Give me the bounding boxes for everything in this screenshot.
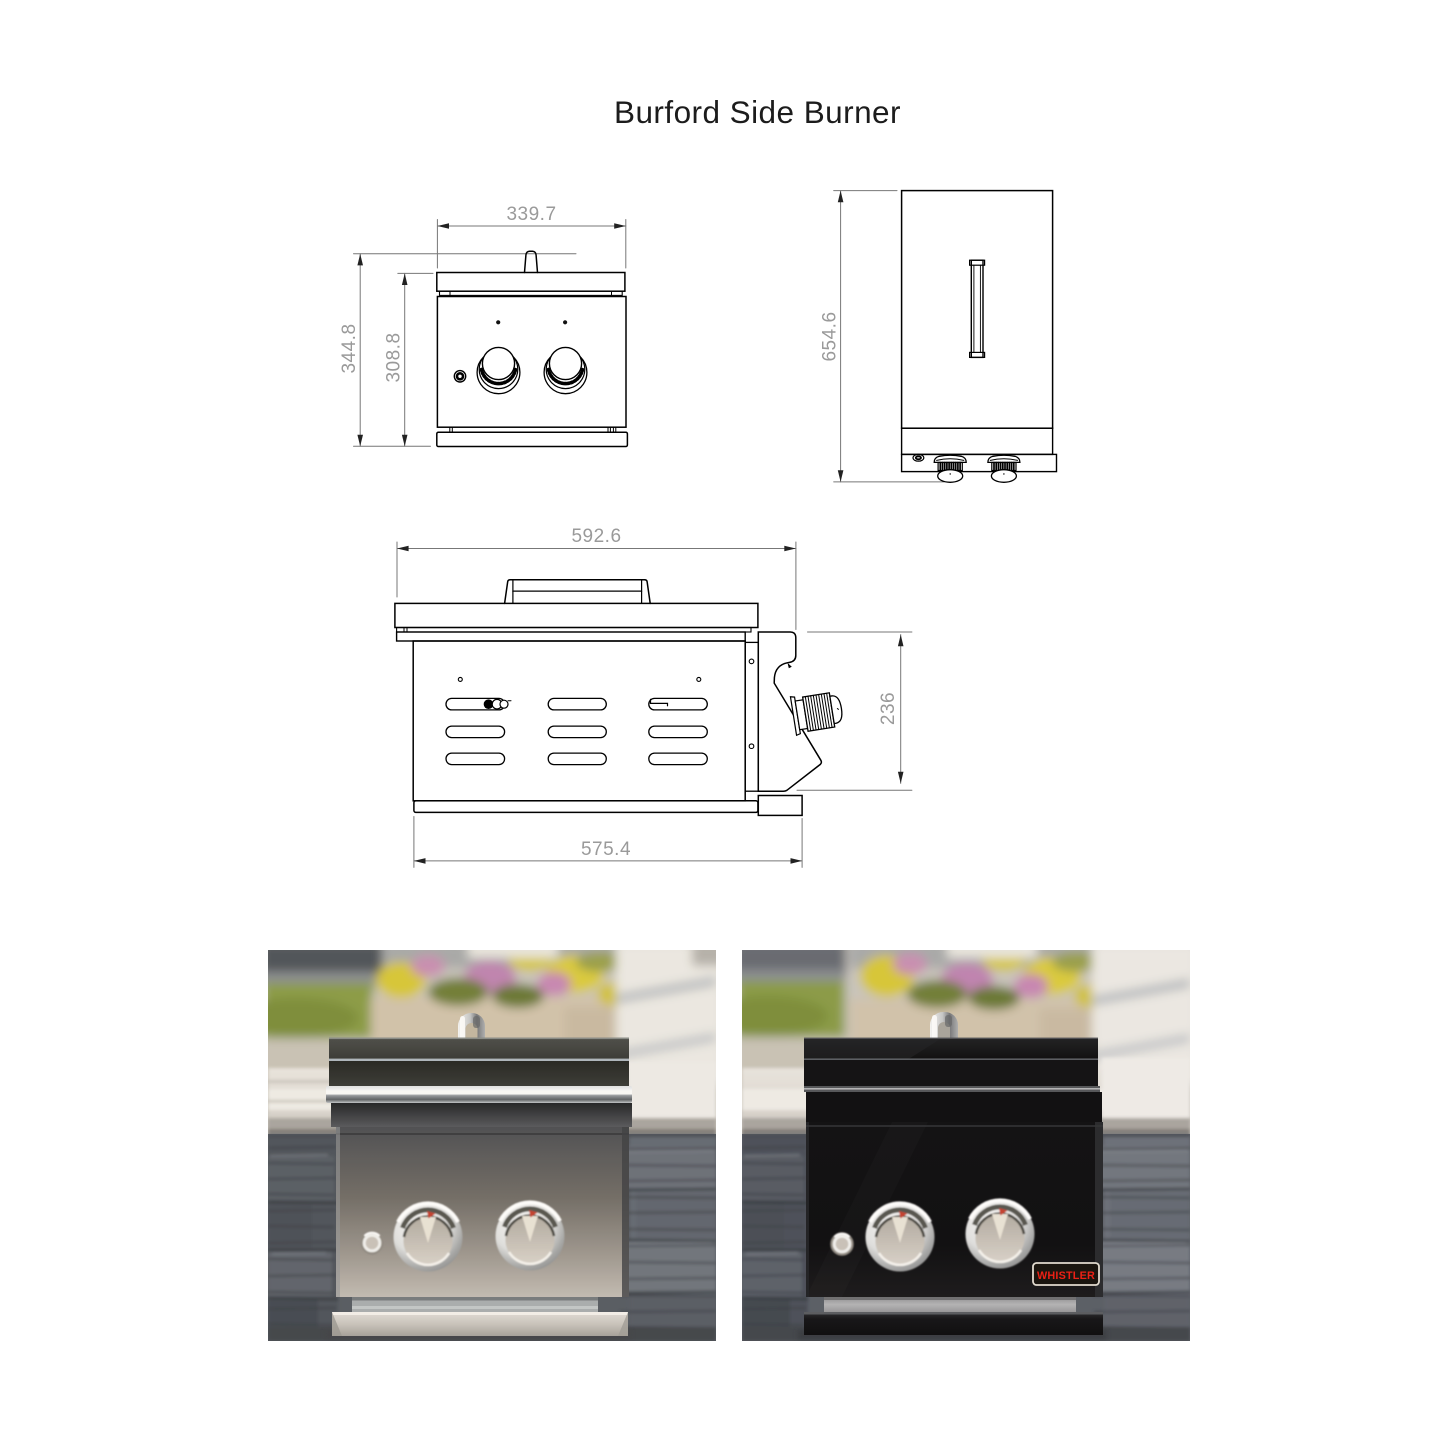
svg-text:592.6: 592.6: [571, 526, 621, 547]
svg-text:236: 236: [878, 692, 899, 725]
svg-text:308.8: 308.8: [384, 332, 405, 382]
svg-text:344.8: 344.8: [339, 323, 360, 373]
svg-text:339.7: 339.7: [506, 204, 556, 225]
svg-text:654.6: 654.6: [820, 311, 841, 361]
svg-text:575.4: 575.4: [581, 839, 631, 860]
